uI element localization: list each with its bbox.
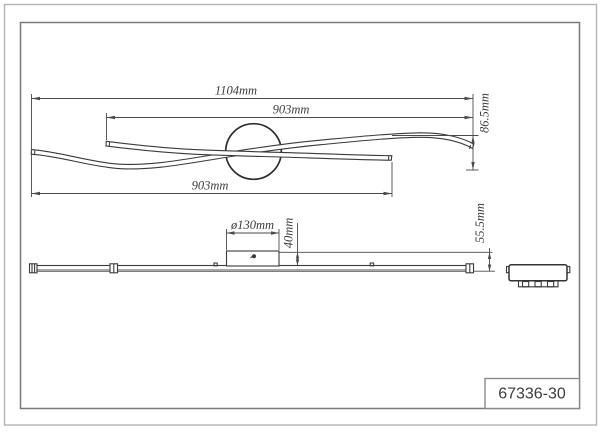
canopy: [227, 251, 280, 266]
drawing-sheet: 1104mm 903mm 903mm 86.5mm: [0, 0, 600, 438]
model-number: 67336-30: [498, 386, 566, 403]
dim-label-lower-span: 903mm: [192, 179, 229, 193]
inner-border: [21, 23, 580, 409]
sheet-borders: [5, 5, 597, 426]
dim-label-upper-span: 903mm: [273, 103, 310, 117]
dim-label-wave-height: 86.5mm: [478, 93, 492, 133]
dim-label-overall-width: 1104mm: [215, 84, 257, 98]
dim-label-canopy-height: 40mm: [282, 218, 296, 249]
title-block: 67336-30: [485, 379, 580, 409]
dim-label-total-height: 55.5mm: [473, 203, 487, 243]
dim-label-canopy-diameter: ø130mm: [230, 218, 274, 232]
end-view-body: [509, 265, 567, 281]
technical-drawing: 1104mm 903mm 903mm 86.5mm: [0, 0, 600, 438]
